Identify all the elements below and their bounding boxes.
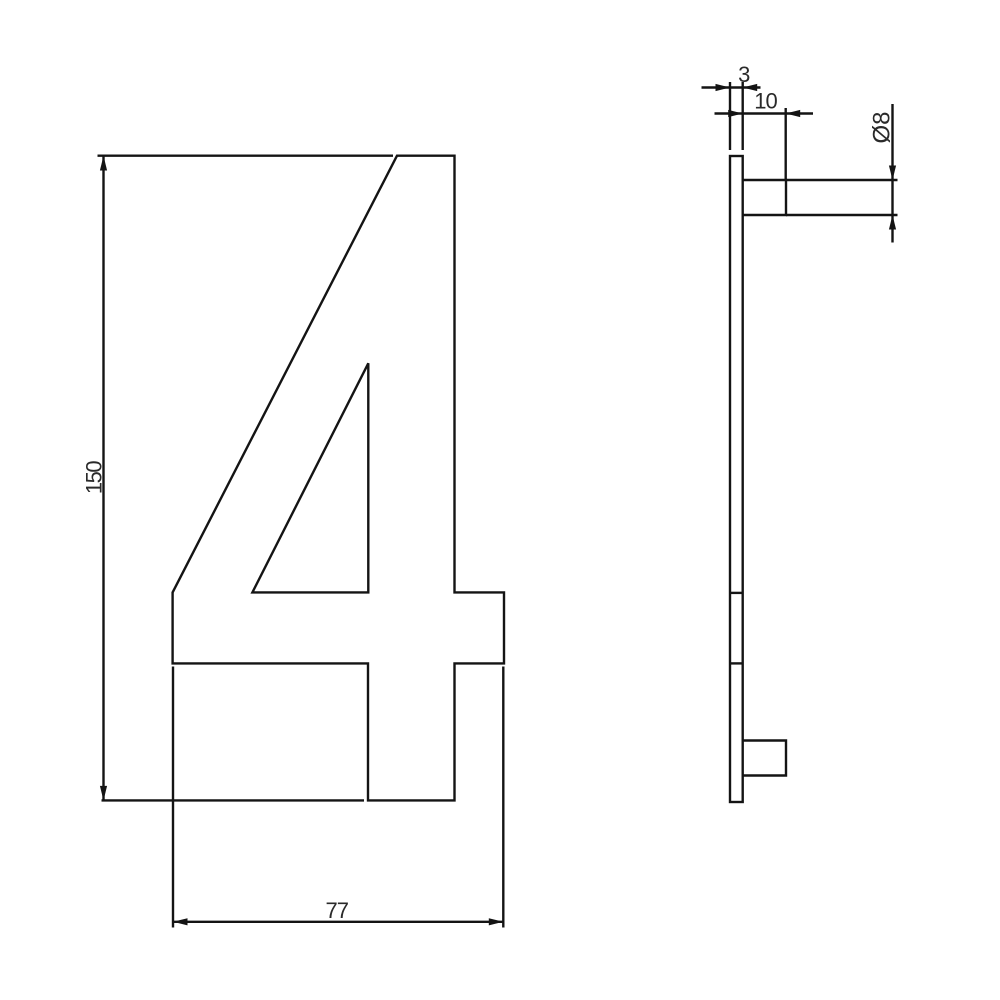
svg-text:150: 150 bbox=[82, 461, 107, 494]
svg-text:Ø8: Ø8 bbox=[869, 111, 896, 143]
svg-text:3: 3 bbox=[738, 62, 750, 87]
svg-text:10: 10 bbox=[754, 89, 777, 114]
svg-text:77: 77 bbox=[326, 898, 349, 923]
